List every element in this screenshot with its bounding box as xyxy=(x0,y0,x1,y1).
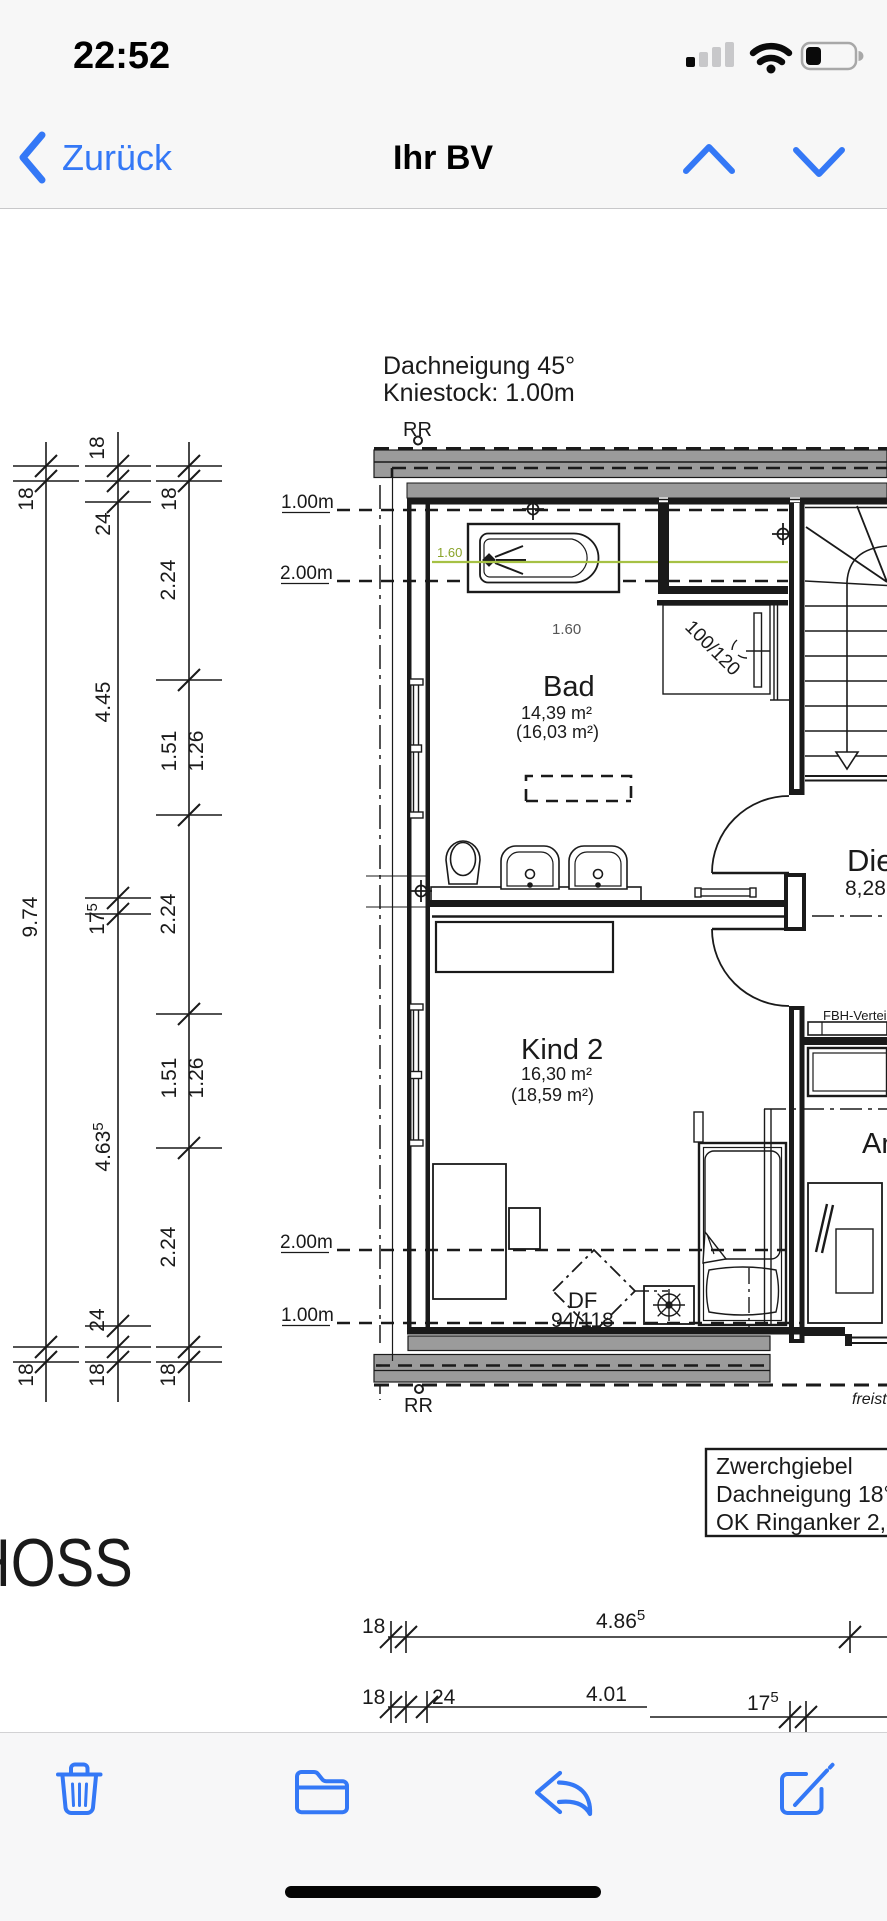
svg-text:FBH-Verteiler: FBH-Verteiler xyxy=(823,1008,887,1023)
svg-text:HOSS: HOSS xyxy=(0,1526,133,1601)
svg-text:175: 175 xyxy=(747,1689,779,1715)
svg-text:175: 175 xyxy=(84,903,109,935)
svg-text:1.26: 1.26 xyxy=(185,1058,208,1099)
svg-text:1.51: 1.51 xyxy=(158,731,181,772)
svg-text:Kniestock: 1.00m: Kniestock: 1.00m xyxy=(383,379,575,407)
svg-text:2.00m: 2.00m xyxy=(280,1232,333,1253)
svg-text:1.00m: 1.00m xyxy=(281,1305,334,1326)
svg-text:Kind 2: Kind 2 xyxy=(521,1034,603,1066)
svg-text:18: 18 xyxy=(15,1363,38,1386)
svg-text:9.74: 9.74 xyxy=(19,896,42,937)
svg-text:14,39 m²: 14,39 m² xyxy=(521,703,592,723)
svg-text:4.865: 4.865 xyxy=(596,1607,645,1633)
svg-text:16,30 m²: 16,30 m² xyxy=(521,1064,592,1084)
svg-text:1.60: 1.60 xyxy=(552,621,581,638)
svg-text:1.60: 1.60 xyxy=(437,545,462,560)
svg-text:(18,59 m²): (18,59 m²) xyxy=(511,1085,594,1105)
svg-text:RR: RR xyxy=(404,1395,433,1417)
svg-text:2.24: 2.24 xyxy=(157,893,180,934)
svg-text:18: 18 xyxy=(86,1363,109,1386)
svg-text:Ankleide: Ankleide xyxy=(862,1128,887,1160)
svg-text:Bad: Bad xyxy=(543,671,595,703)
svg-text:24: 24 xyxy=(432,1686,456,1709)
svg-text:1.26: 1.26 xyxy=(185,731,208,772)
svg-text:1.51: 1.51 xyxy=(158,1058,181,1099)
svg-text:8,28 m²: 8,28 m² xyxy=(845,877,887,900)
svg-text:Dachneigung 45°: Dachneigung 45° xyxy=(383,352,575,380)
svg-text:4.635: 4.635 xyxy=(90,1122,115,1171)
svg-text:(16,03 m²): (16,03 m²) xyxy=(516,722,599,742)
svg-text:OK Ringanker 2,30: OK Ringanker 2,30 xyxy=(716,1509,887,1535)
svg-text:18: 18 xyxy=(157,1363,180,1386)
svg-text:18: 18 xyxy=(158,487,181,510)
svg-text:Dachneigung 18°: Dachneigung 18° xyxy=(716,1481,887,1507)
svg-text:100/120: 100/120 xyxy=(680,617,743,680)
svg-text:18: 18 xyxy=(362,1615,385,1638)
svg-text:4.01: 4.01 xyxy=(586,1683,627,1706)
svg-text:Diele: Diele xyxy=(847,843,887,878)
svg-text:24: 24 xyxy=(92,512,115,536)
svg-text:2.24: 2.24 xyxy=(157,559,180,600)
svg-text:4.45: 4.45 xyxy=(92,682,115,723)
svg-text:2.24: 2.24 xyxy=(157,1226,180,1267)
svg-text:Zwerchgiebel: Zwerchgiebel xyxy=(716,1453,853,1479)
svg-text:18: 18 xyxy=(362,1686,385,1709)
svg-text:24: 24 xyxy=(86,1308,109,1332)
svg-text:18: 18 xyxy=(86,436,109,459)
svg-text:Zurück: Zurück xyxy=(62,137,173,178)
svg-text:2.00m: 2.00m xyxy=(280,563,333,584)
svg-text:Ihr BV: Ihr BV xyxy=(393,139,493,177)
svg-text:freist.: freist. xyxy=(852,1391,887,1408)
svg-text:1.00m: 1.00m xyxy=(281,492,334,513)
svg-text:RR: RR xyxy=(403,419,432,441)
svg-text:18: 18 xyxy=(15,487,38,510)
